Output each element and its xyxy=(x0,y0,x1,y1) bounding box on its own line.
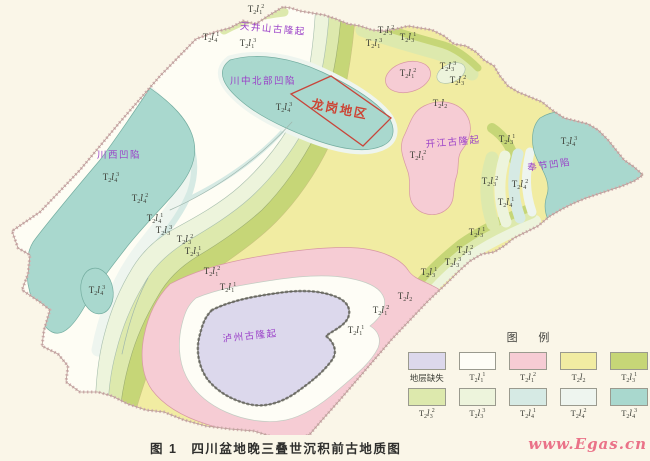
legend-swatch xyxy=(560,352,598,370)
region-t2l4-3-fengjie xyxy=(532,112,641,230)
legend-item: T2l33 xyxy=(459,388,497,420)
legend-swatch xyxy=(408,388,446,406)
legend-item: T2l42 xyxy=(560,388,598,420)
legend-label: T2l41 xyxy=(509,408,547,420)
band-t2l3-3-fengjie xyxy=(500,156,506,222)
legend-swatch xyxy=(509,388,547,406)
legend-item: T2l31 xyxy=(610,352,648,384)
legend-grid: 地层缺失T2l11T2l12T2l2T2l31T2l32T2l33T2l41T2… xyxy=(408,352,648,420)
legend-label: T2l31 xyxy=(610,372,648,384)
legend-title: 图 例 xyxy=(408,329,648,345)
legend-label: T2l32 xyxy=(408,408,446,420)
legend-item: T2l11 xyxy=(459,352,497,384)
legend-item: T2l43 xyxy=(610,388,648,420)
legend-item: 地层缺失 xyxy=(408,352,446,384)
legend-label: T2l12 xyxy=(509,372,547,384)
legend-label: T2l42 xyxy=(560,408,598,420)
legend-swatch xyxy=(408,352,446,370)
legend-swatch xyxy=(560,388,598,406)
legend-swatch xyxy=(610,352,648,370)
legend-label: T2l33 xyxy=(459,408,497,420)
legend-item: T2l12 xyxy=(509,352,547,384)
legend-label: 地层缺失 xyxy=(408,372,446,384)
legend-item: T2l41 xyxy=(509,388,547,420)
legend-label: T2l43 xyxy=(610,408,648,420)
legend-label: T2l11 xyxy=(459,372,497,384)
legend-item: T2l2 xyxy=(560,352,598,384)
figure-caption: 图 1 四川盆地晚三叠世沉积前古地质图 xyxy=(150,438,401,457)
watermark: www.Egas.cn xyxy=(528,435,647,453)
band-t2l3-2-fengjie xyxy=(487,158,493,224)
legend-swatch xyxy=(459,388,497,406)
band-t2l4-2-fengjie xyxy=(526,152,532,212)
legend-swatch xyxy=(459,352,497,370)
band-t2l4-1-fengjie xyxy=(514,154,520,218)
legend-swatch xyxy=(509,352,547,370)
legend-swatch xyxy=(610,388,648,406)
legend-label: T2l2 xyxy=(560,372,598,384)
legend-item: T2l32 xyxy=(408,388,446,420)
geological-map-figure: T2l12T2l41T2l13T2l43T2l43T2l42T2l41T2l33… xyxy=(0,0,650,461)
legend: 图 例 地层缺失T2l11T2l12T2l2T2l31T2l32T2l33T2l… xyxy=(408,329,648,420)
